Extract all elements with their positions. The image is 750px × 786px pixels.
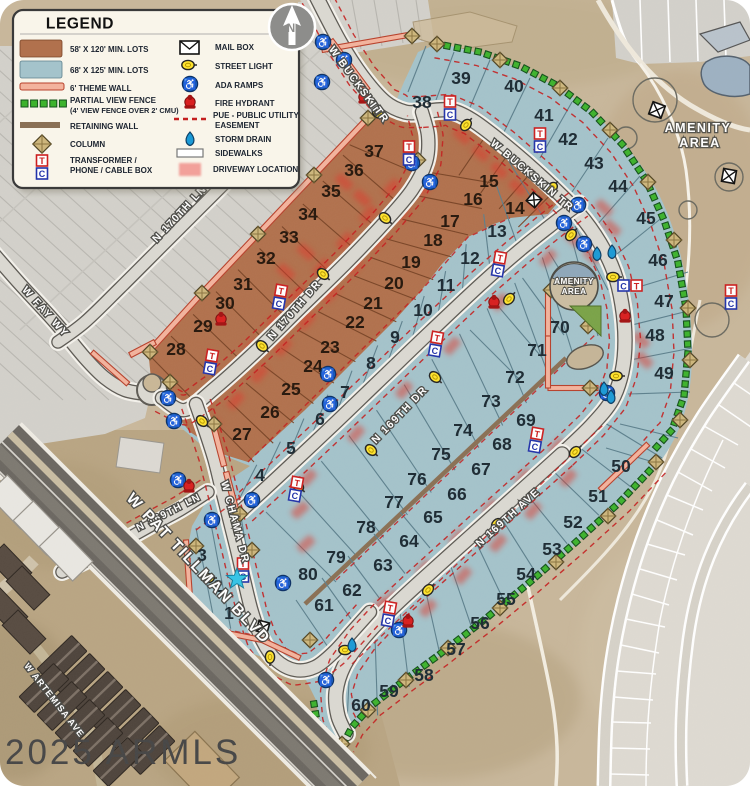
svg-text:STORM DRAIN: STORM DRAIN <box>215 135 272 144</box>
svg-text:♿: ♿ <box>183 78 197 91</box>
svg-text:FIRE HYDRANT: FIRE HYDRANT <box>215 99 275 108</box>
svg-text:ADA RAMPS: ADA RAMPS <box>215 81 264 90</box>
svg-text:PHONE / CABLE BOX: PHONE / CABLE BOX <box>70 166 153 175</box>
svg-text:PARTIAL VIEW FENCE: PARTIAL VIEW FENCE <box>70 96 157 105</box>
svg-text:N: N <box>287 23 295 35</box>
svg-text:DRIVEWAY LOCATION: DRIVEWAY LOCATION <box>213 165 298 174</box>
svg-text:68' X 125' MIN. LOTS: 68' X 125' MIN. LOTS <box>70 66 149 75</box>
svg-text:RETAINING WALL: RETAINING WALL <box>70 122 138 131</box>
svg-text:LEGEND: LEGEND <box>46 16 114 33</box>
svg-text:TRANSFORMER /: TRANSFORMER / <box>70 156 137 165</box>
svg-text:(4' VIEW FENCE OVER 2' CMU): (4' VIEW FENCE OVER 2' CMU) <box>70 106 179 115</box>
svg-text:C: C <box>39 169 46 179</box>
svg-text:COLUMN: COLUMN <box>70 140 105 149</box>
svg-text:T: T <box>39 156 45 166</box>
svg-text:58' X 120' MIN. LOTS: 58' X 120' MIN. LOTS <box>70 45 149 54</box>
svg-text:MAIL BOX: MAIL BOX <box>215 43 255 52</box>
svg-text:SIDEWALKS: SIDEWALKS <box>215 149 263 158</box>
svg-text:EASEMENT: EASEMENT <box>215 121 260 130</box>
svg-text:6' THEME WALL: 6' THEME WALL <box>70 84 132 93</box>
svg-text:STREET LIGHT: STREET LIGHT <box>215 62 273 71</box>
svg-text:PUE - PUBLIC UTILITY: PUE - PUBLIC UTILITY <box>213 111 299 120</box>
